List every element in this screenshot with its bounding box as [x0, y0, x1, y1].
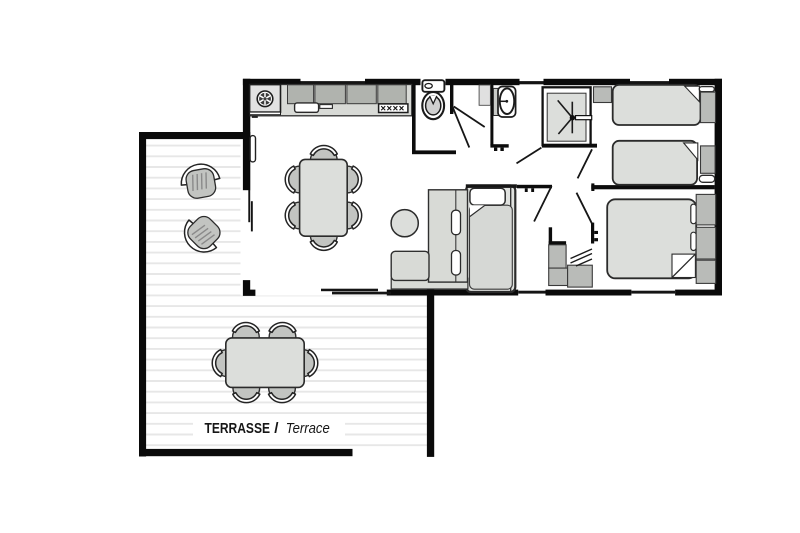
svg-text:TERRASSE: TERRASSE [205, 420, 271, 437]
svg-text:Terrace: Terrace [286, 420, 330, 437]
